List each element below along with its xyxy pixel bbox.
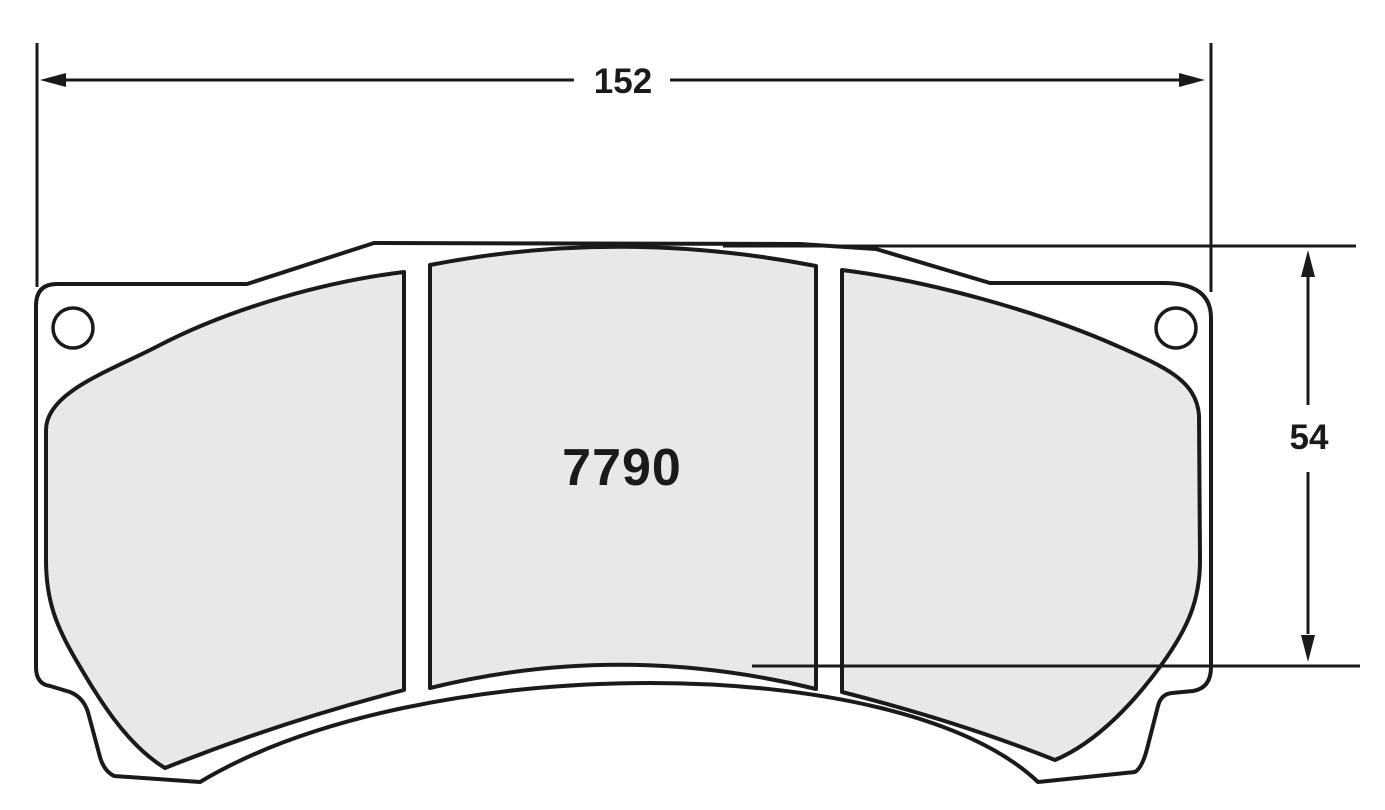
pad-assembly: 7790 bbox=[36, 243, 1211, 782]
arrowhead-up-icon bbox=[1301, 250, 1315, 277]
mounting-hole-right bbox=[1156, 308, 1196, 348]
drawing-canvas: 7790 152 54 bbox=[0, 0, 1385, 810]
arrowhead-right-icon bbox=[1179, 73, 1205, 87]
arrowhead-left-icon bbox=[40, 73, 66, 87]
brake-pad-technical-drawing: 7790 152 54 bbox=[0, 0, 1385, 810]
height-dimension-label: 54 bbox=[1290, 418, 1329, 457]
width-dimension-label: 152 bbox=[594, 62, 652, 101]
arrowhead-down-icon bbox=[1301, 635, 1315, 662]
mounting-hole-left bbox=[53, 308, 93, 348]
part-number-label: 7790 bbox=[562, 439, 682, 497]
